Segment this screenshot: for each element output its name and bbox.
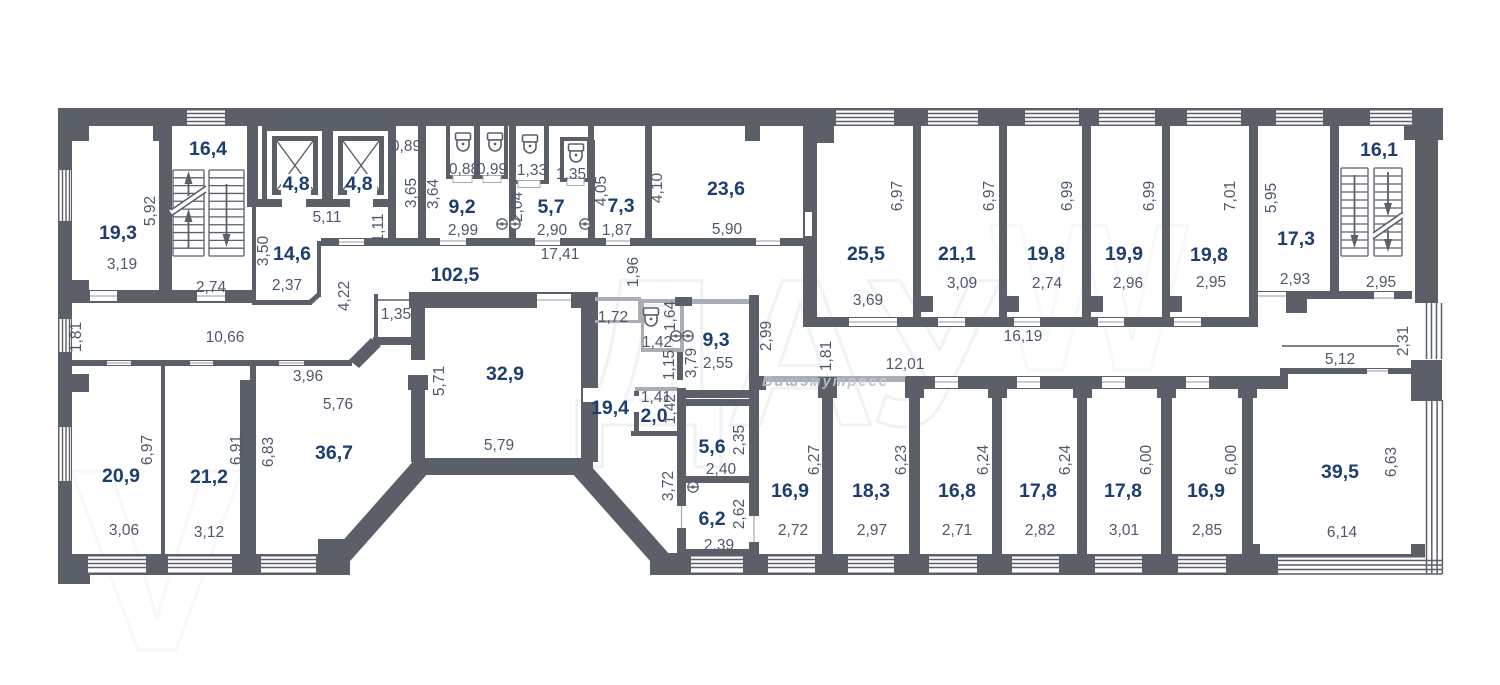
svg-text:2,35: 2,35 (731, 425, 748, 455)
svg-text:25,5: 25,5 (847, 243, 885, 265)
svg-text:3,65: 3,65 (403, 178, 420, 208)
svg-text:5,79: 5,79 (484, 437, 514, 454)
svg-text:17,8: 17,8 (1104, 480, 1142, 502)
svg-text:2,71: 2,71 (942, 522, 972, 539)
svg-text:19,4: 19,4 (591, 397, 629, 419)
svg-text:3,09: 3,09 (947, 275, 977, 292)
svg-text:19,8: 19,8 (1190, 244, 1228, 266)
svg-text:23,6: 23,6 (707, 178, 745, 200)
svg-text:1,33: 1,33 (517, 162, 547, 179)
svg-text:3,06: 3,06 (109, 522, 139, 539)
svg-text:0,89: 0,89 (391, 138, 421, 155)
svg-text:19,9: 19,9 (1105, 243, 1143, 265)
svg-text:16,9: 16,9 (771, 480, 809, 502)
svg-text:2,99: 2,99 (758, 321, 775, 351)
svg-text:6,99: 6,99 (1141, 181, 1158, 211)
svg-text:3,79: 3,79 (683, 348, 700, 378)
svg-text:1,81: 1,81 (818, 341, 835, 371)
svg-text:6,14: 6,14 (1327, 524, 1358, 541)
svg-text:4,22: 4,22 (336, 281, 353, 311)
svg-text:2,90: 2,90 (537, 222, 568, 239)
svg-text:6,97: 6,97 (139, 435, 156, 465)
svg-text:7,3: 7,3 (607, 195, 634, 217)
svg-text:16,19: 16,19 (1004, 328, 1043, 345)
svg-text:16,8: 16,8 (938, 480, 976, 502)
svg-text:5,12: 5,12 (1325, 351, 1355, 368)
svg-text:20,9: 20,9 (102, 465, 140, 487)
svg-text:2,55: 2,55 (703, 355, 733, 372)
svg-text:3,12: 3,12 (194, 524, 224, 541)
svg-text:6,00: 6,00 (1138, 445, 1155, 476)
svg-text:6,83: 6,83 (260, 437, 277, 467)
svg-text:36,7: 36,7 (315, 442, 353, 464)
svg-text:3,69: 3,69 (853, 292, 883, 309)
svg-text:3,50: 3,50 (255, 236, 272, 267)
svg-text:2,82: 2,82 (1025, 522, 1055, 539)
svg-text:5,11: 5,11 (312, 209, 341, 226)
svg-text:5,90: 5,90 (712, 221, 743, 238)
svg-text:2,96: 2,96 (1113, 275, 1143, 292)
svg-text:7,01: 7,01 (1222, 181, 1239, 211)
svg-text:5,6: 5,6 (698, 436, 725, 458)
svg-text:2,85: 2,85 (1192, 522, 1222, 539)
svg-text:1,96: 1,96 (625, 257, 642, 287)
svg-text:1,42: 1,42 (642, 334, 672, 351)
svg-text:3,19: 3,19 (107, 256, 137, 273)
svg-text:17,41: 17,41 (541, 246, 580, 263)
svg-text:2,04: 2,04 (509, 192, 526, 223)
svg-text:5,92: 5,92 (142, 196, 159, 226)
svg-text:19,3: 19,3 (99, 222, 137, 244)
svg-text:6,24: 6,24 (975, 445, 992, 476)
svg-text:1,11: 1,11 (370, 213, 387, 242)
svg-text:39,5: 39,5 (1321, 461, 1359, 483)
svg-text:6,24: 6,24 (1057, 445, 1074, 476)
svg-text:2,93: 2,93 (1280, 271, 1310, 288)
svg-text:1,87: 1,87 (602, 222, 632, 239)
svg-text:5,71: 5,71 (431, 366, 448, 396)
svg-text:2,95: 2,95 (1366, 274, 1396, 291)
svg-text:6,23: 6,23 (893, 445, 910, 475)
svg-text:32,9: 32,9 (486, 363, 524, 385)
svg-text:6,00: 6,00 (1223, 445, 1240, 476)
svg-text:2,39: 2,39 (704, 537, 734, 554)
svg-text:0,88: 0,88 (449, 161, 479, 178)
svg-text:9,3: 9,3 (702, 329, 729, 351)
svg-text:1,81: 1,81 (68, 322, 85, 352)
svg-text:4,05: 4,05 (593, 176, 610, 206)
svg-text:6,63: 6,63 (1383, 447, 1400, 477)
svg-text:6,91: 6,91 (228, 435, 245, 465)
svg-text:2,97: 2,97 (857, 522, 887, 539)
svg-text:6,2: 6,2 (698, 508, 725, 530)
svg-text:2,74: 2,74 (1032, 275, 1063, 292)
svg-text:1,42: 1,42 (662, 394, 679, 424)
svg-text:4,8: 4,8 (345, 173, 372, 195)
svg-text:19,8: 19,8 (1027, 243, 1065, 265)
svg-text:1,35: 1,35 (381, 306, 411, 323)
svg-text:12,01: 12,01 (886, 356, 925, 373)
svg-text:2,74: 2,74 (196, 279, 227, 296)
svg-text:1,15: 1,15 (661, 350, 678, 380)
svg-text:6,27: 6,27 (806, 445, 823, 475)
svg-text:21,2: 21,2 (190, 466, 228, 488)
svg-text:6,97: 6,97 (981, 181, 998, 211)
svg-text:2,95: 2,95 (1196, 274, 1226, 291)
svg-text:4,10: 4,10 (649, 173, 666, 204)
svg-text:0,99: 0,99 (477, 161, 507, 178)
svg-text:16,1: 16,1 (1360, 139, 1398, 161)
svg-text:16,9: 16,9 (1187, 480, 1225, 502)
svg-text:2,72: 2,72 (778, 522, 808, 539)
svg-text:2,37: 2,37 (272, 277, 302, 294)
svg-text:2,31: 2,31 (1395, 326, 1412, 356)
svg-text:9,2: 9,2 (448, 196, 475, 218)
svg-text:102,5: 102,5 (431, 264, 480, 286)
svg-text:1,35: 1,35 (556, 166, 586, 183)
svg-text:V: V (70, 416, 245, 685)
svg-text:3,96: 3,96 (293, 368, 323, 385)
svg-text:18,3: 18,3 (852, 480, 890, 502)
svg-text:1,64: 1,64 (662, 301, 679, 332)
svg-text:6,97: 6,97 (889, 181, 906, 211)
svg-text:5,76: 5,76 (323, 396, 353, 413)
svg-text:3,64: 3,64 (425, 179, 442, 210)
svg-text:2,99: 2,99 (448, 222, 478, 239)
svg-text:10,66: 10,66 (206, 329, 245, 346)
svg-text:1,72: 1,72 (598, 309, 628, 326)
svg-text:21,1: 21,1 (938, 243, 976, 265)
svg-text:17,3: 17,3 (1277, 228, 1315, 250)
svg-text:2,62: 2,62 (731, 499, 748, 529)
svg-text:17,8: 17,8 (1019, 480, 1057, 502)
svg-text:3,72: 3,72 (660, 471, 677, 501)
svg-text:6,99: 6,99 (1059, 181, 1076, 211)
svg-text:5,95: 5,95 (1263, 183, 1280, 213)
svg-text:16,4: 16,4 (189, 138, 227, 160)
svg-text:2,40: 2,40 (706, 461, 737, 478)
svg-text:3,01: 3,01 (1109, 522, 1139, 539)
svg-text:14,6: 14,6 (273, 243, 311, 265)
svg-text:5,7: 5,7 (537, 196, 564, 218)
svg-text:Вишэмутресс: Вишэмутресс (762, 374, 889, 390)
svg-text:4,8: 4,8 (282, 173, 309, 195)
